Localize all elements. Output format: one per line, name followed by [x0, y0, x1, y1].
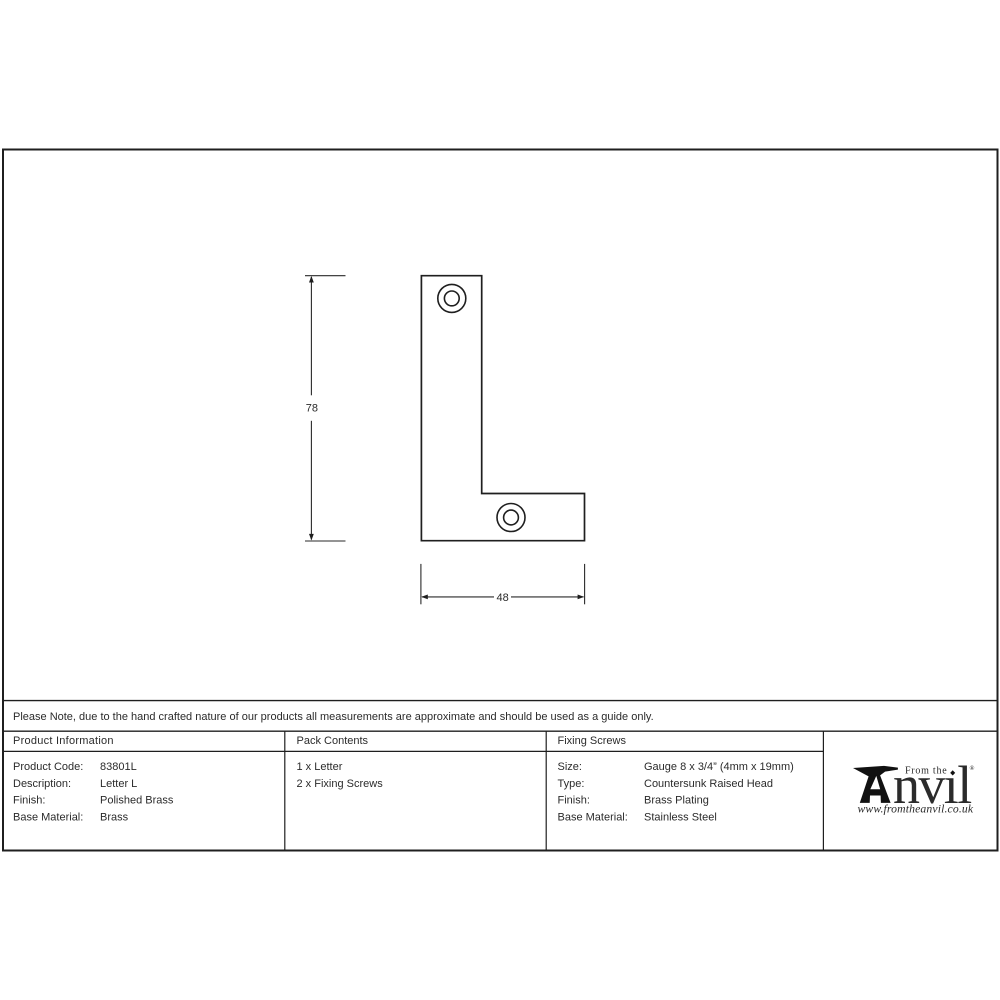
svg-text:78: 78 [306, 403, 318, 415]
svg-text:Brass: Brass [100, 811, 129, 823]
svg-text:48: 48 [496, 592, 508, 604]
svg-text:Finish:: Finish: [558, 795, 590, 807]
svg-text:Base Material:: Base Material: [558, 811, 628, 823]
svg-text:83801L: 83801L [100, 761, 137, 773]
svg-text:Letter L: Letter L [100, 778, 137, 790]
svg-text:Please Note, due to the hand c: Please Note, due to the hand crafted nat… [13, 711, 654, 723]
svg-text:Pack Contents: Pack Contents [297, 735, 369, 747]
svg-text:Size:: Size: [558, 761, 582, 773]
svg-text:Product Information: Product Information [13, 735, 114, 747]
svg-text:Polished Brass: Polished Brass [100, 795, 174, 807]
svg-text:www.fromtheanvil.co.uk: www.fromtheanvil.co.uk [858, 803, 974, 816]
svg-text:Fixing Screws: Fixing Screws [558, 735, 627, 747]
svg-text:Product Code:: Product Code: [13, 761, 83, 773]
svg-text:®: ® [970, 765, 975, 772]
svg-text:2 x Fixing Screws: 2 x Fixing Screws [297, 778, 384, 790]
svg-text:Base Material:: Base Material: [13, 811, 83, 823]
svg-text:Description:: Description: [13, 778, 71, 790]
svg-text:Gauge 8 x 3/4” (4mm x 19mm): Gauge 8 x 3/4” (4mm x 19mm) [644, 761, 794, 773]
svg-text:Brass Plating: Brass Plating [644, 795, 709, 807]
svg-text:Finish:: Finish: [13, 795, 45, 807]
svg-text:Countersunk Raised Head: Countersunk Raised Head [644, 778, 773, 790]
svg-text:1 x Letter: 1 x Letter [297, 761, 343, 773]
svg-text:Type:: Type: [558, 778, 585, 790]
svg-text:Stainless Steel: Stainless Steel [644, 811, 717, 823]
